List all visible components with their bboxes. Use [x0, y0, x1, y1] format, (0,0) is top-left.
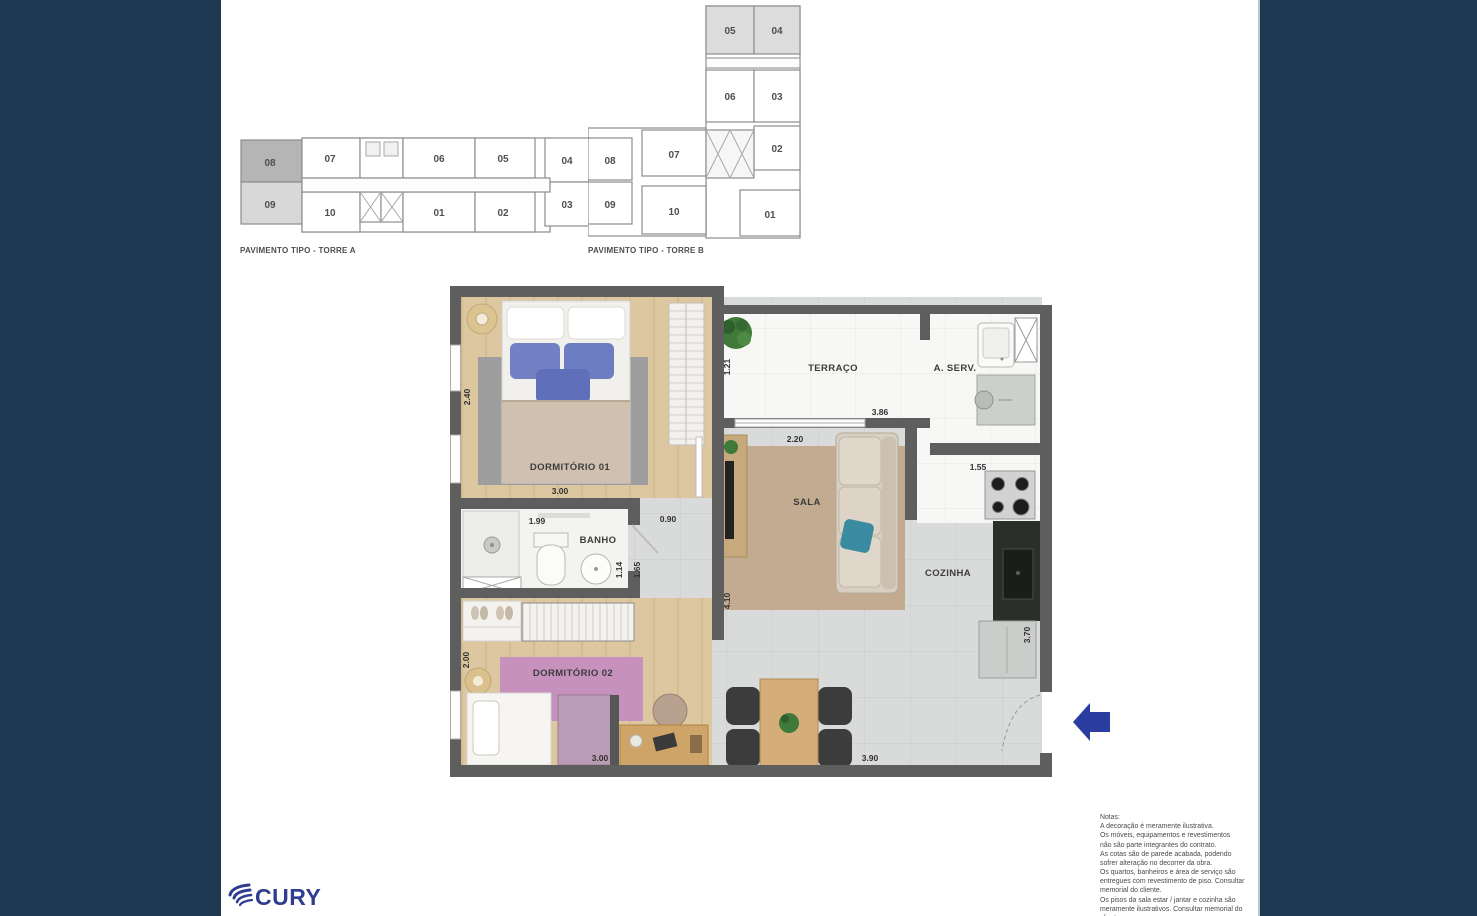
cury-logo-text: CURY — [255, 884, 321, 910]
shower — [463, 511, 519, 587]
left-navy-panel — [0, 0, 221, 916]
unit-label: 06 — [433, 154, 445, 165]
single-bed — [467, 693, 551, 765]
room-label-sala: SALA — [793, 497, 820, 508]
dining-table — [760, 679, 818, 769]
second-bed — [558, 695, 619, 765]
dim-dorm2-h: 2.00 — [461, 651, 471, 668]
toilet — [534, 533, 568, 585]
room-label-cozinha: COZINHA — [925, 568, 971, 579]
dorm2-closet — [522, 603, 634, 641]
room-label-terraco: TERRAÇO — [808, 363, 858, 374]
torre-a-caption: PAVIMENTO TIPO - TORRE A — [240, 246, 356, 255]
double-bed — [502, 301, 630, 483]
notes-line: A decoração é meramente ilustrativa. — [1100, 822, 1256, 831]
dorm2-shoe-shelf — [463, 601, 521, 641]
dim-banho-w: 1.99 — [529, 516, 546, 526]
notes-line: não são parte integrantes do contrato. — [1100, 841, 1256, 850]
dim-cozinha-w: 1.55 — [970, 462, 987, 472]
sofa — [836, 433, 898, 593]
notes-line: memorial do cliente. — [1100, 886, 1256, 895]
right-navy-panel — [1258, 0, 1477, 916]
dim-dorm1-h: 2.40 — [462, 388, 472, 405]
room-label-dorm1: DORMITÓRIO 01 — [530, 461, 610, 473]
washing-machine — [975, 375, 1035, 425]
unit-label: 07 — [668, 150, 680, 161]
notes-text: Notas: A decoração é meramente ilustrati… — [1100, 813, 1256, 916]
notes-line: Os móveis, equipamentos e revestimentos — [1100, 831, 1256, 840]
unit-label: 03 — [771, 92, 783, 103]
torre-b-caption: PAVIMENTO TIPO - TORRE B — [588, 246, 704, 255]
notes-title: Notas: — [1100, 813, 1256, 822]
unit-label: 04 — [771, 26, 783, 37]
unit-label: 04 — [561, 156, 573, 167]
dim-dorm2-w: 3.00 — [592, 753, 609, 763]
unit-label: 09 — [264, 200, 276, 211]
torre-a-keyplan: 08 09 07 10 06 01 05 02 04 03 — [240, 128, 590, 240]
dorm1-door-leaf — [696, 437, 702, 497]
unit-label: 09 — [604, 200, 616, 211]
laundry-tank — [978, 323, 1014, 367]
main-floorplan: DORMITÓRIO 01 TERRAÇO A. SERV. SALA BANH… — [450, 283, 1062, 780]
unit-label: 02 — [497, 208, 509, 219]
cury-logo-icon — [230, 885, 252, 905]
aserv-window — [1015, 318, 1037, 362]
dim-living-w: 3.90 — [862, 753, 879, 763]
stove — [985, 471, 1035, 519]
notes-line: Os pisos da sala estar / jantar e cozinh… — [1100, 896, 1256, 905]
dim-banho-h: 1.14 — [614, 561, 624, 578]
unit-label: 01 — [433, 208, 445, 219]
room-label-aserv: A. SERV. — [934, 363, 977, 374]
dorm1-nightstand — [467, 304, 497, 334]
unit-label: 08 — [604, 156, 616, 167]
dim-terraco-h: 1.21 — [722, 358, 732, 375]
notes-line: entregues com revestimento de piso. Cons… — [1100, 877, 1256, 886]
room-label-banho: BANHO — [580, 535, 617, 546]
dim-sala-w: 2.20 — [787, 434, 804, 444]
room-label-dorm2: DORMITÓRIO 02 — [533, 667, 613, 679]
kitchen-counter — [993, 521, 1042, 621]
notes-line: meramente ilustrativos. Consultar memori… — [1100, 905, 1256, 914]
page: 08 09 07 10 06 01 05 02 04 03 PAVIMENTO … — [0, 0, 1477, 916]
notes-line: Os quartos, banheiros e área de serviço … — [1100, 868, 1256, 877]
terraco-plant — [720, 317, 752, 349]
unit-label: 05 — [497, 154, 509, 165]
unit-label: 07 — [324, 154, 336, 165]
dim-hall-w: 0.90 — [660, 514, 677, 524]
unit-label: 02 — [771, 144, 783, 155]
dorm2-nightstand — [465, 668, 491, 694]
unit-label: 10 — [668, 207, 680, 218]
dim-terraco-w: 3.86 — [872, 407, 889, 417]
dim-dorm1-w: 3.00 — [552, 486, 569, 496]
dim-cozinha-h: 3.70 — [1022, 626, 1032, 643]
unit-label: 10 — [324, 208, 336, 219]
entrance-arrow-icon — [1073, 701, 1111, 743]
bathroom-sink — [581, 554, 611, 584]
torre-b-keyplan: 05 04 06 03 02 01 08 07 09 10 — [588, 4, 803, 242]
unit-label: 08 — [264, 158, 276, 169]
unit-label: 05 — [724, 26, 736, 37]
dim-living-h: 4.10 — [722, 592, 732, 609]
notes-line: sofrer alteração no decorrer da obra. — [1100, 859, 1256, 868]
notes-line: As cotas são de parede acabada, podendo — [1100, 850, 1256, 859]
dorm1-wardrobe — [669, 303, 704, 445]
unit-label: 03 — [561, 200, 573, 211]
bathroom-shelf — [538, 513, 590, 518]
unit-label: 01 — [764, 210, 776, 221]
cury-logo: CURY — [227, 878, 322, 912]
dim-hall-h: 1.65 — [632, 561, 642, 578]
unit-label: 06 — [724, 92, 736, 103]
